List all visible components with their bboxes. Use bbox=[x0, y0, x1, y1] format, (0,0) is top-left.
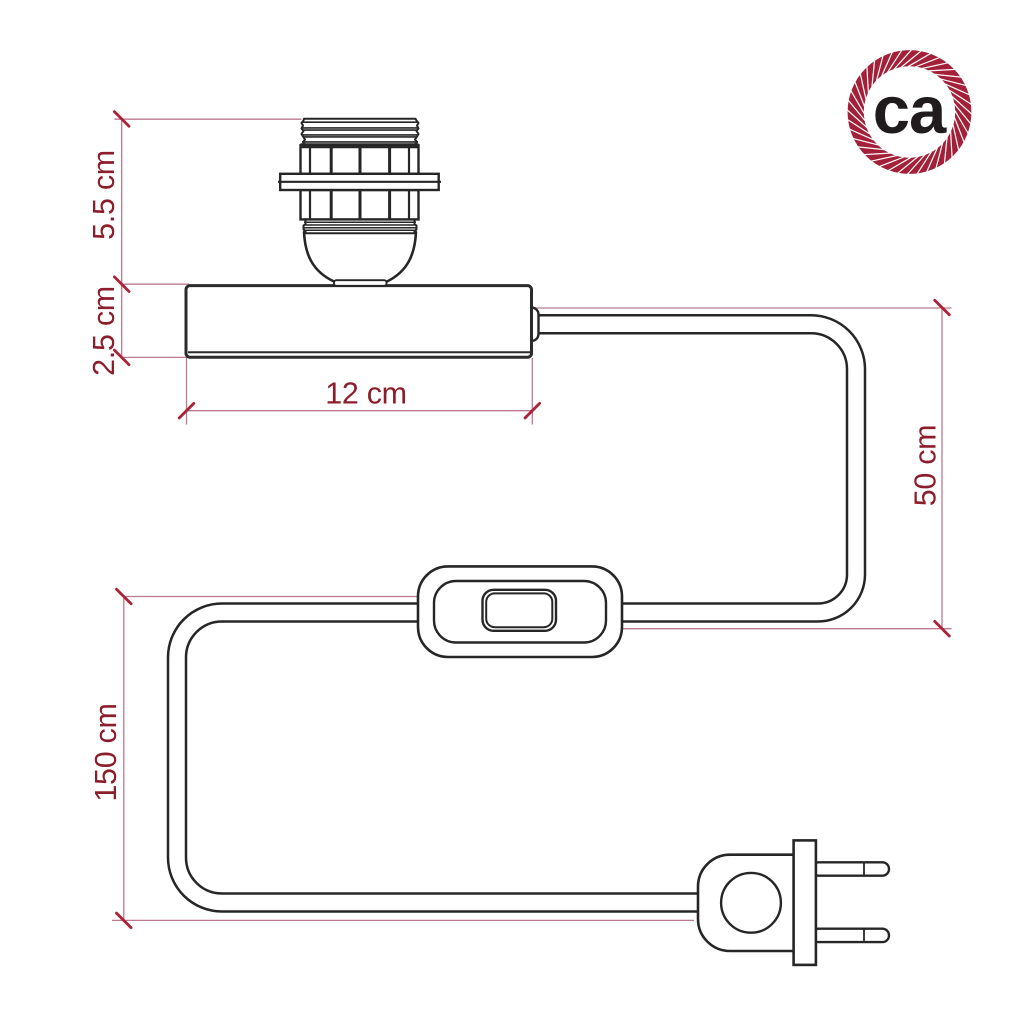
svg-text:150 cm: 150 cm bbox=[89, 703, 123, 801]
svg-text:5.5 cm: 5.5 cm bbox=[87, 150, 121, 240]
svg-text:2.5 cm: 2.5 cm bbox=[87, 286, 121, 376]
svg-text:12 cm: 12 cm bbox=[325, 377, 407, 411]
svg-text:50 cm: 50 cm bbox=[909, 425, 943, 507]
svg-text:ca: ca bbox=[873, 73, 947, 148]
